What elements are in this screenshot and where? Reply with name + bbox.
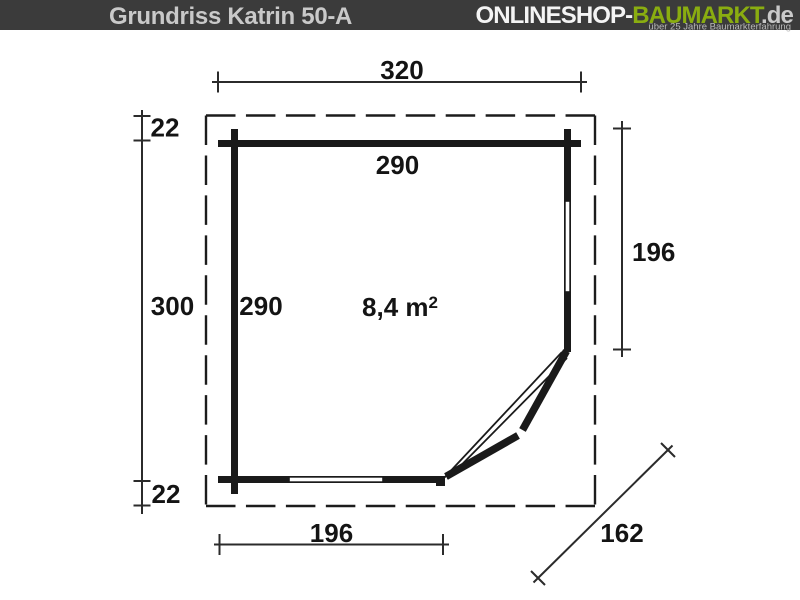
svg-text:300: 300	[151, 291, 194, 321]
svg-text:22: 22	[152, 479, 181, 509]
svg-text:290: 290	[239, 291, 282, 321]
svg-text:196: 196	[310, 518, 353, 548]
svg-text:196: 196	[632, 237, 675, 267]
svg-text:320: 320	[380, 55, 423, 85]
svg-text:Grundriss Katrin 50-A: Grundriss Katrin 50-A	[109, 3, 352, 30]
svg-text:290: 290	[376, 150, 419, 180]
svg-text:über 25 Jahre Baumarkterfahrun: über 25 Jahre Baumarkterfahrung	[648, 22, 791, 33]
svg-text:162: 162	[600, 518, 643, 548]
svg-text:22: 22	[151, 113, 180, 143]
svg-text:8,4 m2: 8,4 m2	[362, 292, 438, 322]
